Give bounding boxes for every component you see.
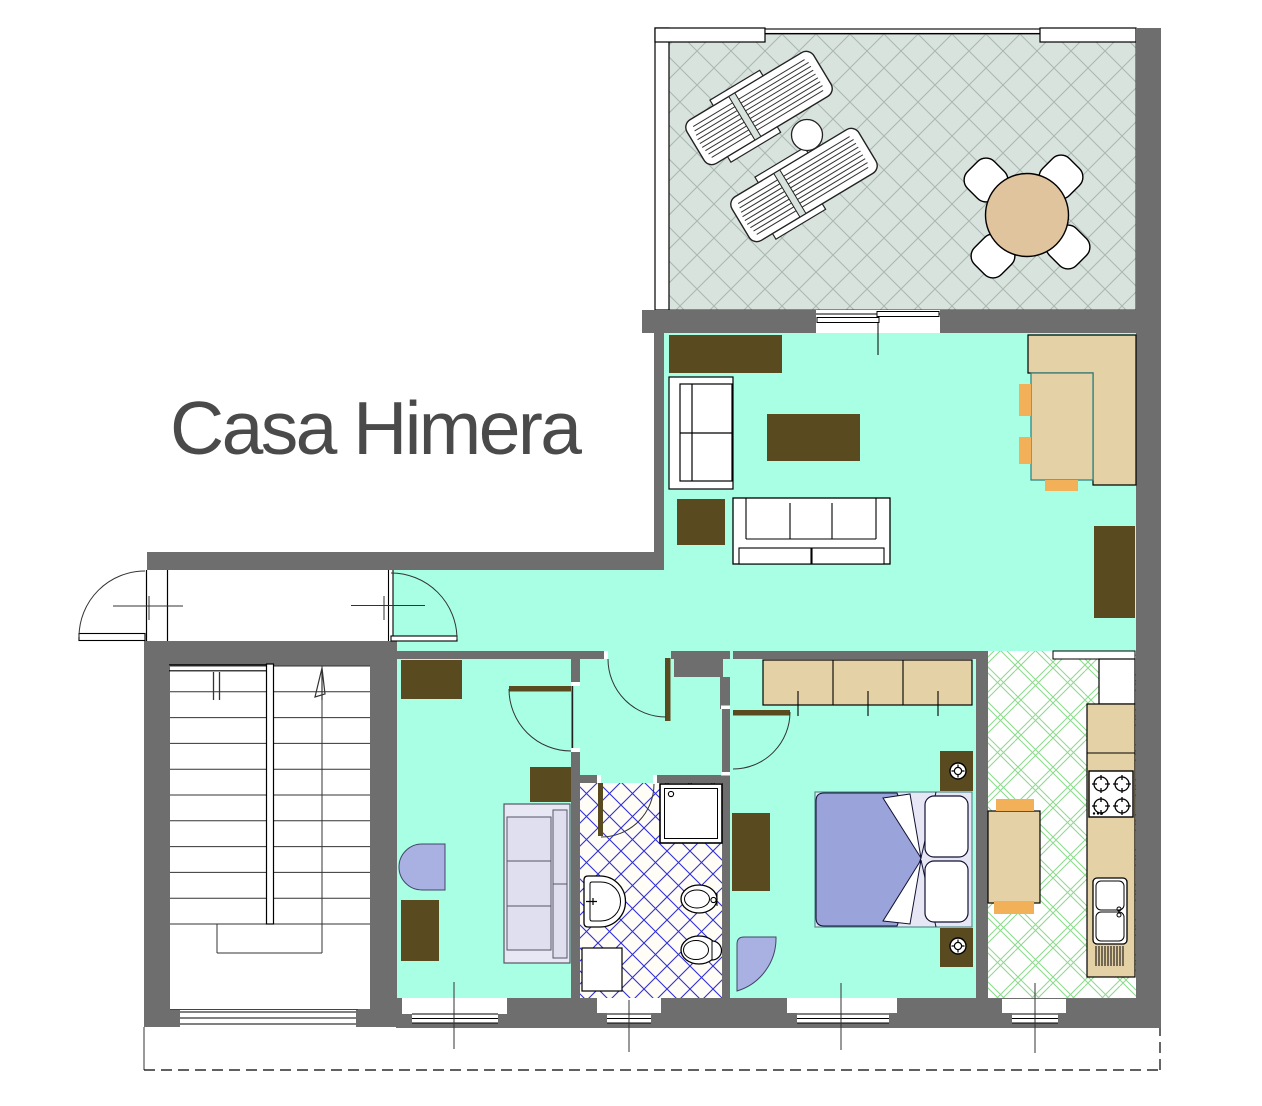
svg-text:Casa Himera: Casa Himera (170, 386, 582, 470)
